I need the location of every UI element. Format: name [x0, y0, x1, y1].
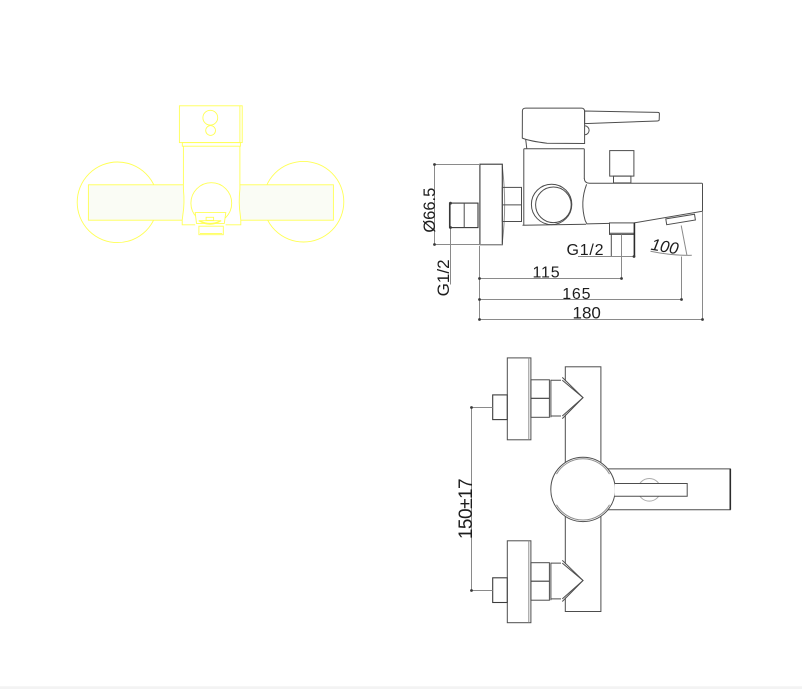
svg-text:100: 100 — [650, 236, 681, 259]
svg-text:165: 165 — [562, 286, 591, 303]
svg-text:150±17: 150±17 — [456, 479, 477, 539]
svg-text:Ø66.5: Ø66.5 — [421, 188, 439, 233]
svg-text:G1/2: G1/2 — [566, 242, 604, 259]
svg-text:180: 180 — [573, 304, 601, 323]
svg-text:115: 115 — [533, 265, 561, 282]
svg-text:G1/2: G1/2 — [434, 259, 453, 296]
